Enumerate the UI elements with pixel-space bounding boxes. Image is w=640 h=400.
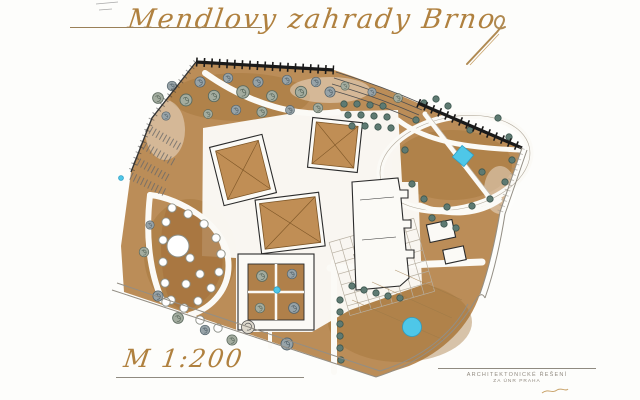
cloister-garden (238, 254, 314, 330)
building-central (255, 192, 325, 253)
title-block-rule (438, 368, 596, 369)
title-block: ARCHITEKTONICKÉ ŘEŠENÍ ZA ÚNR PRAHA (438, 368, 596, 385)
plan-sheet: Mendlovy zahrady Brno M 1:200 ARCHITEKTO… (0, 0, 640, 400)
plan-title: Mendlovy zahrady Brno (126, 4, 499, 35)
scale-underline (116, 377, 304, 378)
signature-mark (540, 386, 570, 396)
small-pond-west (119, 176, 124, 181)
title-block-line2: ZA ÚNR PRAHA (438, 379, 596, 385)
corner-marks (96, 2, 118, 10)
courtyard-fountain (274, 287, 280, 293)
site-plan-drawing (0, 0, 640, 400)
circular-pool (403, 318, 422, 337)
title-underline (70, 27, 262, 28)
title-block-line1: ARCHITEKTONICKÉ ŘEŠENÍ (438, 372, 596, 379)
scale-label: M 1:200 (122, 344, 246, 373)
